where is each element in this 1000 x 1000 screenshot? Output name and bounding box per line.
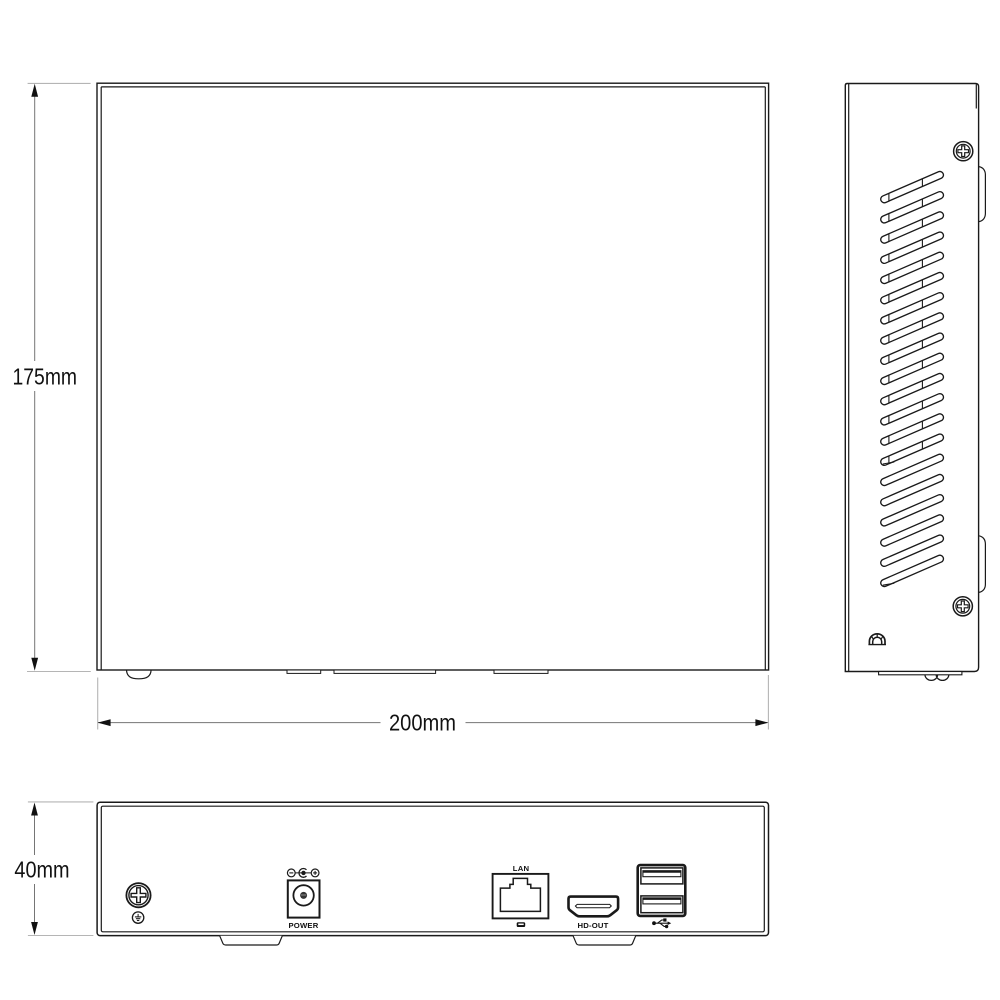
svg-text:HD-OUT: HD-OUT — [577, 921, 608, 930]
svg-text:LAN: LAN — [513, 864, 530, 873]
svg-text:40mm: 40mm — [14, 856, 69, 882]
svg-text:175mm: 175mm — [13, 363, 78, 389]
svg-text:POWER: POWER — [288, 921, 318, 930]
svg-text:200mm: 200mm — [389, 710, 456, 736]
